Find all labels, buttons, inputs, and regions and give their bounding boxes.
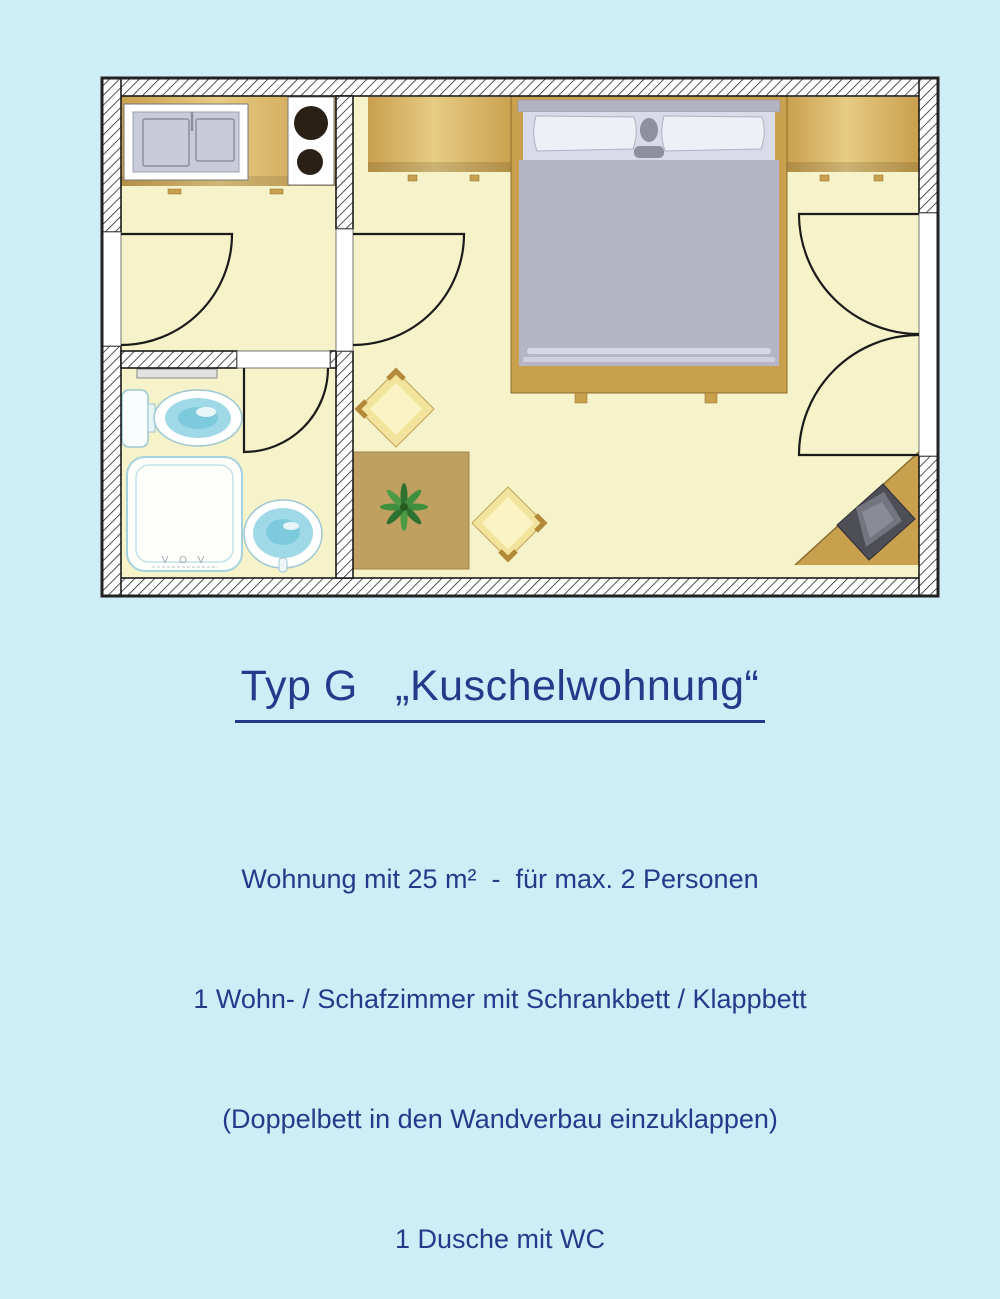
wardrobe-handle	[408, 175, 417, 181]
cabinet-handle	[168, 189, 181, 194]
wall-interior-upper	[336, 96, 353, 229]
wall-right-lower	[919, 456, 938, 596]
double-bed	[511, 95, 787, 403]
wardrobe-sheen	[368, 97, 515, 172]
bed-foot	[705, 393, 717, 403]
wall-bathroom-left	[121, 351, 237, 368]
apartment-description: Wohnung mit 25 m² - für max. 2 Personen …	[0, 779, 1000, 1299]
description-line: Wohnung mit 25 m² - für max. 2 Personen	[0, 859, 1000, 899]
towel-rail-icon	[137, 369, 217, 378]
wardrobe-left	[368, 97, 515, 181]
shower-icon: V O V	[127, 457, 242, 571]
bed-center-detail	[634, 146, 664, 158]
wardrobe-handle	[470, 175, 479, 181]
apartment-info-page: V O V	[0, 0, 1000, 1000]
duvet	[519, 160, 779, 366]
double-door-opening	[919, 213, 938, 456]
kitchenette	[121, 96, 336, 194]
headboard	[518, 100, 780, 112]
apartment-type-title: Typ G „Kuschelwohnung“	[235, 662, 766, 723]
bed-foot	[575, 393, 587, 403]
kitchen-sink-icon	[124, 104, 248, 180]
bathroom-door-opening	[237, 351, 330, 368]
duvet-fold	[523, 357, 775, 362]
wall-left-lower	[102, 346, 121, 596]
wardrobe-handle	[874, 175, 883, 181]
bed-center-detail	[640, 118, 658, 142]
wall-bathroom-stub	[330, 351, 336, 368]
entry-door-opening	[102, 232, 121, 346]
pillow-right	[662, 116, 765, 151]
wall-interior-lower	[336, 351, 353, 578]
wardrobe-handle	[820, 175, 829, 181]
wardrobe-sheen	[787, 97, 919, 172]
wall-bottom	[102, 578, 938, 596]
wardrobe-edge	[368, 162, 515, 172]
cabinet-handle	[270, 189, 283, 194]
description-line: (Doppelbett in den Wandverbau einzuklapp…	[0, 1099, 1000, 1139]
wardrobe-edge	[787, 162, 919, 172]
wall-top	[102, 78, 938, 96]
wardrobe-right	[787, 97, 919, 181]
description-line: 1 Wohn- / Schafzimmer mit Schrankbett / …	[0, 979, 1000, 1019]
floor-plan: V O V	[0, 0, 1000, 620]
wall-right-upper	[919, 78, 938, 213]
pillow-left	[534, 116, 637, 151]
shower-mark: V O V	[162, 555, 209, 566]
plant-icon	[380, 483, 428, 531]
description-line: 1 Dusche mit WC	[0, 1219, 1000, 1259]
living-door-opening	[336, 229, 353, 351]
stove-icon	[288, 97, 334, 185]
wall-left-upper	[102, 78, 121, 232]
toilet-icon	[122, 390, 242, 447]
page-title: Typ G „Kuschelwohnung“	[0, 662, 1000, 723]
dining-table	[353, 452, 469, 569]
duvet-fold	[527, 348, 771, 354]
